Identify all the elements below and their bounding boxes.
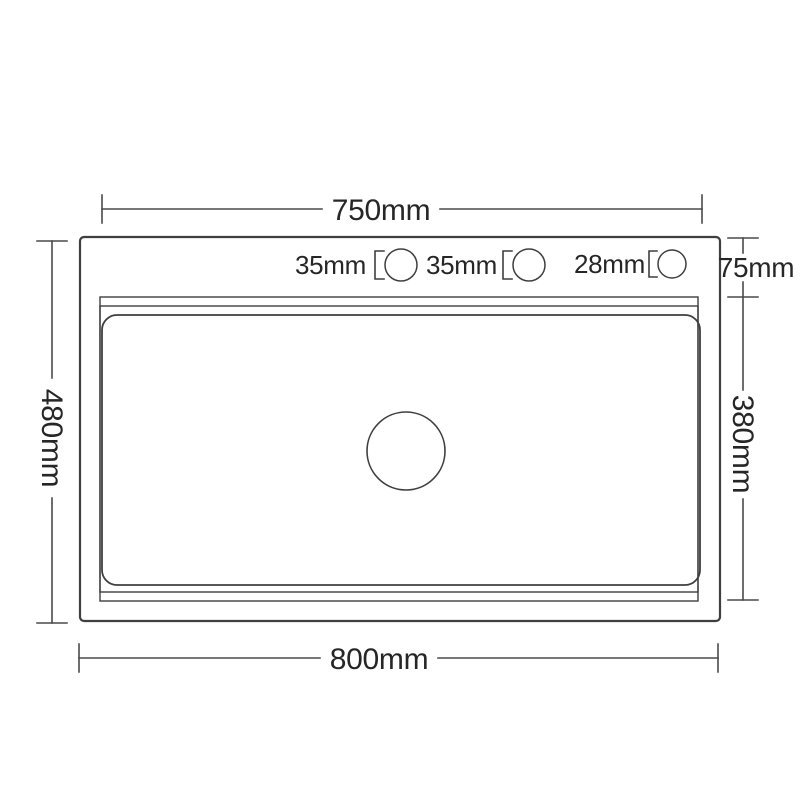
faucet-hole-1-label: 35mm (295, 250, 366, 280)
sink-bowl-edge (102, 315, 700, 585)
sink-dimension-diagram-page: 750mm 800mm 480mm 75mm 380mm 35mm 35mm 2… (0, 0, 800, 800)
sink-recess-outer-edge (100, 297, 698, 601)
dimension-label-right-inner-height: 380mm (726, 395, 759, 494)
sink-outer-rim (80, 237, 720, 621)
bracket-icon-hole-3 (649, 251, 657, 277)
bracket-icon-hole-2 (503, 251, 512, 279)
faucet-hole-2-circle (513, 249, 545, 281)
faucet-hole-1-circle (385, 249, 417, 281)
faucet-hole-3-circle (658, 250, 686, 278)
drain-hole-circle (367, 412, 445, 490)
dimension-label-left-height: 480mm (35, 389, 68, 488)
dimension-label-right-top-inset: 75mm (718, 252, 795, 283)
sink-outline-group (80, 237, 720, 621)
faucet-hole-2-label: 35mm (426, 250, 497, 280)
sink-recess-step-edge (100, 306, 698, 592)
dimension-label-bottom-width: 800mm (330, 643, 429, 676)
faucet-hole-3-label: 28mm (574, 249, 645, 279)
sink-dimension-diagram: 750mm 800mm 480mm 75mm 380mm 35mm 35mm 2… (0, 0, 800, 800)
bracket-icon-hole-1 (375, 251, 384, 279)
dimension-label-top-width: 750mm (332, 194, 431, 227)
dimension-labels-group: 750mm 800mm 480mm 75mm 380mm 35mm 35mm 2… (35, 194, 794, 676)
